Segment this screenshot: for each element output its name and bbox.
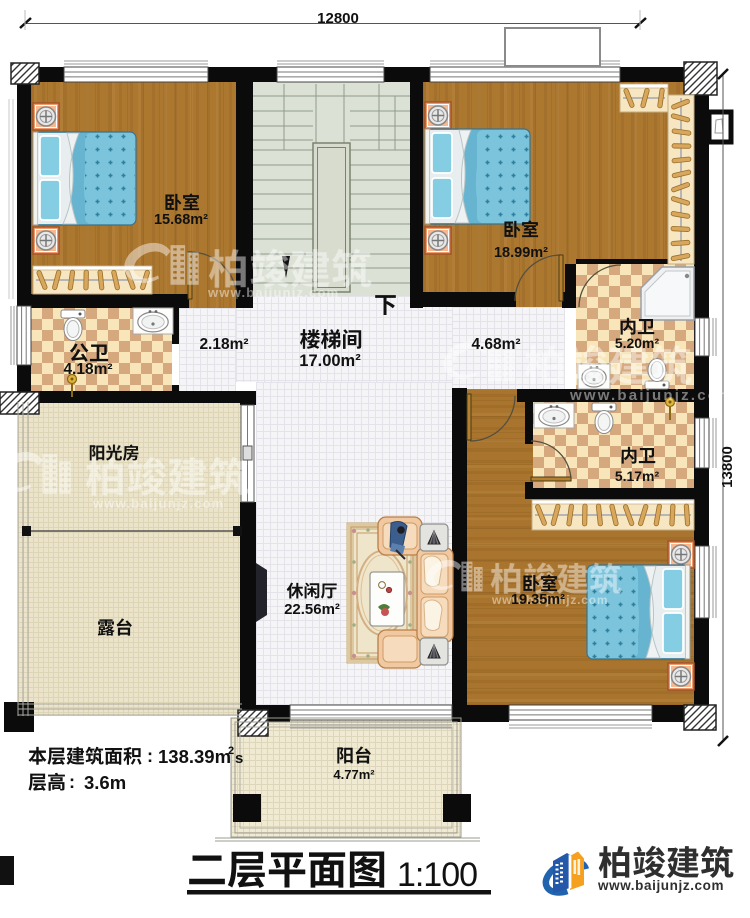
svg-text:s: s — [235, 750, 243, 767]
svg-text:22.56m²: 22.56m² — [284, 601, 340, 618]
svg-text:15.68m²: 15.68m² — [154, 212, 208, 228]
svg-text::: : — [147, 746, 153, 766]
svg-text:2: 2 — [228, 745, 234, 757]
svg-text:2.18m²: 2.18m² — [199, 336, 248, 353]
svg-text:www.baijunjz.com: www.baijunjz.com — [92, 496, 224, 511]
svg-text:138.39m: 138.39m — [158, 746, 231, 767]
svg-text::: : — [69, 772, 75, 792]
svg-text:3.6m: 3.6m — [84, 772, 126, 793]
svg-text:www.baijunjz.com: www.baijunjz.com — [597, 878, 724, 893]
svg-text:4.18m²: 4.18m² — [63, 361, 112, 378]
svg-text:www.baijunjz.com: www.baijunjz.com — [569, 387, 735, 404]
svg-text:4.77m²: 4.77m² — [333, 767, 375, 782]
svg-text:17.00m²: 17.00m² — [299, 352, 361, 370]
svg-text:12800: 12800 — [317, 10, 359, 27]
svg-text:5.17m²: 5.17m² — [615, 468, 660, 484]
svg-text:19.35m²: 19.35m² — [511, 592, 565, 608]
svg-text:4.68m²: 4.68m² — [471, 336, 520, 353]
svg-text:18.99m²: 18.99m² — [494, 245, 548, 261]
svg-text:5.20m²: 5.20m² — [615, 335, 660, 351]
svg-text:13800: 13800 — [719, 446, 736, 488]
svg-text:www.baijunjz.com: www.baijunjz.com — [207, 285, 339, 300]
svg-text:1:100: 1:100 — [397, 856, 477, 894]
